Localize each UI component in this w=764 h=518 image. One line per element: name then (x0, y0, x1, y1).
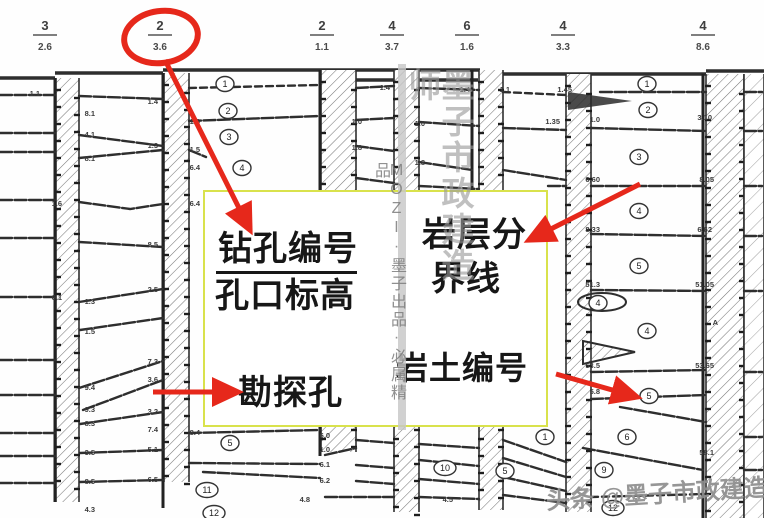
red-annotation-overlay (0, 0, 764, 518)
red-arrow-rock-boundary-label (529, 184, 640, 240)
red-highlight-ellipse (121, 6, 202, 68)
red-arrow-borehole-header (165, 60, 250, 230)
red-arrow-stratum-number (556, 374, 637, 397)
geological-profile-screenshot: 12345111210511234544569121.18.14.18.11.6… (0, 0, 764, 518)
